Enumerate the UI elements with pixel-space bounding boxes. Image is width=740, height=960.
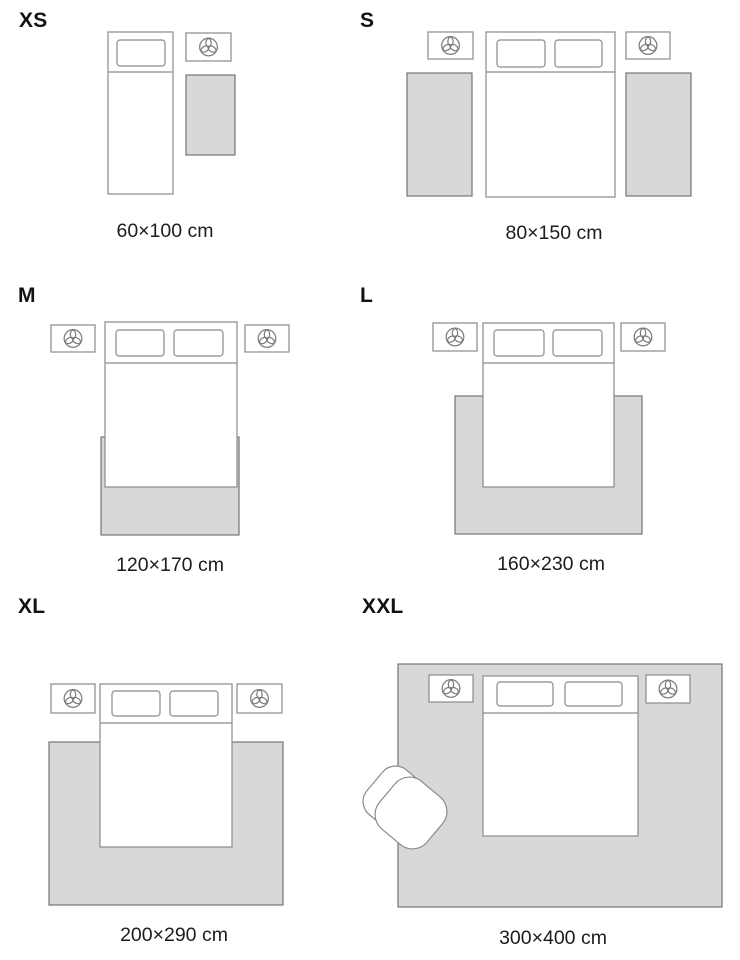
- size-letter-s: S: [360, 10, 374, 31]
- diagram-xl: [45, 675, 295, 910]
- diagram-xxl: [355, 655, 730, 910]
- nightstand-right: [626, 32, 670, 59]
- double-bed: [100, 684, 232, 847]
- nightstand-right: [237, 684, 282, 713]
- pillow: [555, 40, 602, 67]
- size-letter-xxl: XXL: [362, 596, 403, 617]
- nightstand-left: [51, 325, 95, 352]
- pillow: [553, 330, 602, 356]
- diagram-s: [400, 28, 700, 200]
- nightstand-right: [621, 323, 665, 351]
- size-label-xxl: 300×400 cm: [453, 929, 653, 949]
- nightstand-left: [429, 675, 473, 702]
- diagram-m: [45, 318, 295, 540]
- size-letter-xl: XL: [18, 596, 45, 617]
- pillow: [174, 330, 223, 356]
- double-bed: [486, 32, 615, 197]
- size-label-s: 80×150 cm: [454, 224, 654, 244]
- pillow: [170, 691, 218, 716]
- rug: [186, 75, 235, 155]
- size-letter-l: L: [360, 285, 373, 306]
- rug-size-guide: XS 60×100 cm S: [0, 0, 740, 960]
- double-bed: [105, 322, 237, 487]
- rug-right: [626, 73, 691, 196]
- nightstand-left: [428, 32, 473, 59]
- pillow: [112, 691, 160, 716]
- double-bed: [483, 323, 614, 487]
- nightstand-right: [646, 675, 690, 703]
- diagram-xs: [100, 28, 240, 200]
- diagram-l: [428, 318, 673, 540]
- nightstand-left: [51, 684, 95, 713]
- size-label-xs: 60×100 cm: [65, 222, 265, 242]
- pillow: [497, 40, 545, 67]
- rug-left: [407, 73, 472, 196]
- size-label-m: 120×170 cm: [70, 556, 270, 576]
- pillow: [494, 330, 544, 356]
- nightstand-right: [245, 325, 289, 352]
- pillow: [497, 682, 553, 706]
- size-label-l: 160×230 cm: [451, 555, 651, 575]
- pillow: [565, 682, 622, 706]
- single-bed: [108, 32, 173, 194]
- size-letter-m: M: [18, 285, 36, 306]
- double-bed: [483, 676, 638, 836]
- nightstand: [186, 33, 231, 61]
- pillow: [117, 40, 165, 66]
- size-letter-xs: XS: [19, 10, 47, 31]
- pillow: [116, 330, 164, 356]
- nightstand-left: [433, 323, 477, 351]
- size-label-xl: 200×290 cm: [74, 926, 274, 946]
